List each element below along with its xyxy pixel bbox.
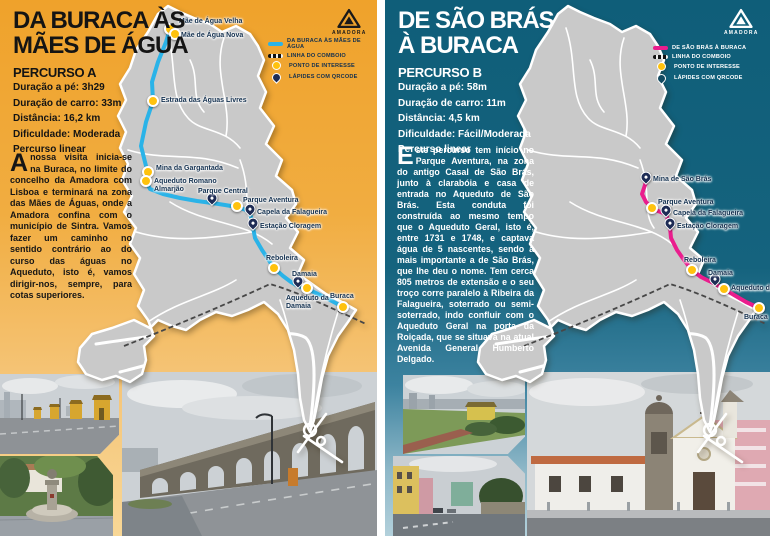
stat-duration-walk: Duração a pé: 58m — [398, 80, 531, 96]
route-line-icon — [653, 46, 668, 50]
amadora-triangle-emblem-icon — [336, 8, 362, 29]
stat-distance: Distância: 4,5 km — [398, 111, 531, 127]
legend-item-route: DA BURACA ÀS MÃES DE ÁGUA — [268, 38, 377, 50]
qrcode-pin-icon — [655, 72, 668, 85]
panel-percurso-b: Mina de São BrásParque AventuraCapela da… — [385, 0, 770, 536]
amadora-logo-label: AMADORA — [724, 30, 759, 36]
legend-item-qrcode: LÁPIDES COM QRCODE — [653, 74, 746, 83]
train-line-icon — [653, 55, 668, 59]
brochure-page: Mãe de Água VelhaMãe de Água NovaEstrada… — [0, 0, 770, 536]
poi-bulb-icon — [657, 62, 666, 71]
map-legend: DE SÃO BRÁS À BURACA LINHA DO COMBOIO PO… — [653, 45, 746, 85]
train-line-icon — [268, 54, 283, 58]
stat-difficulty: Dificuldade: Moderada — [13, 127, 121, 143]
route-code: PERCURSO B — [398, 65, 554, 80]
amadora-logo: AMADORA — [332, 8, 367, 36]
route-line-icon — [268, 42, 283, 46]
stat-duration-car: Duração de carro: 33m — [13, 96, 121, 112]
map-legend: DA BURACA ÀS MÃES DE ÁGUA LINHA DO COMBO… — [268, 38, 377, 84]
route-stats: Duração a pé: 3h29 Duração de carro: 33m… — [13, 80, 121, 158]
legend-item-poi: PONTO DE INTERESSE — [653, 62, 746, 71]
amadora-logo: AMADORA — [724, 8, 759, 36]
qrcode-pin-icon — [270, 71, 283, 84]
stat-duration-walk: Duração a pé: 3h29 — [13, 80, 121, 96]
stat-duration-car: Duração de carro: 11m — [398, 96, 531, 112]
page-title: DA BURACA ÀS MÃES DE ÁGUA — [13, 8, 188, 58]
route-code: PERCURSO A — [13, 65, 188, 80]
legend-item-train: LINHA DO COMBOIO — [653, 54, 746, 60]
amadora-logo-label: AMADORA — [332, 30, 367, 36]
legend-item-train: LINHA DO COMBOIO — [268, 53, 377, 59]
stat-difficulty: Dificuldade: Fácil/Moderada — [398, 127, 531, 143]
amadora-triangle-emblem-icon — [728, 8, 754, 29]
legend-item-qrcode: LÁPIDES COM QRCODE — [268, 73, 377, 82]
route-description: A nossa visita inicia-se na Buraca, no l… — [10, 152, 132, 302]
panel-header: DA BURACA ÀS MÃES DE ÁGUA PERCURSO A — [13, 8, 188, 80]
poi-bulb-icon — [272, 61, 281, 70]
panel-header: DE SÃO BRÁS À BURACA PERCURSO B — [398, 8, 554, 80]
page-title: DE SÃO BRÁS À BURACA — [398, 8, 554, 58]
panel-percurso-a: Mãe de Água VelhaMãe de Água NovaEstrada… — [0, 0, 377, 536]
route-description: Este percurso tem início no Parque Avent… — [397, 145, 534, 365]
legend-item-route: DE SÃO BRÁS À BURACA — [653, 45, 746, 51]
legend-item-poi: PONTO DE INTERESSE — [268, 61, 377, 70]
stat-distance: Distância: 16,2 km — [13, 111, 121, 127]
